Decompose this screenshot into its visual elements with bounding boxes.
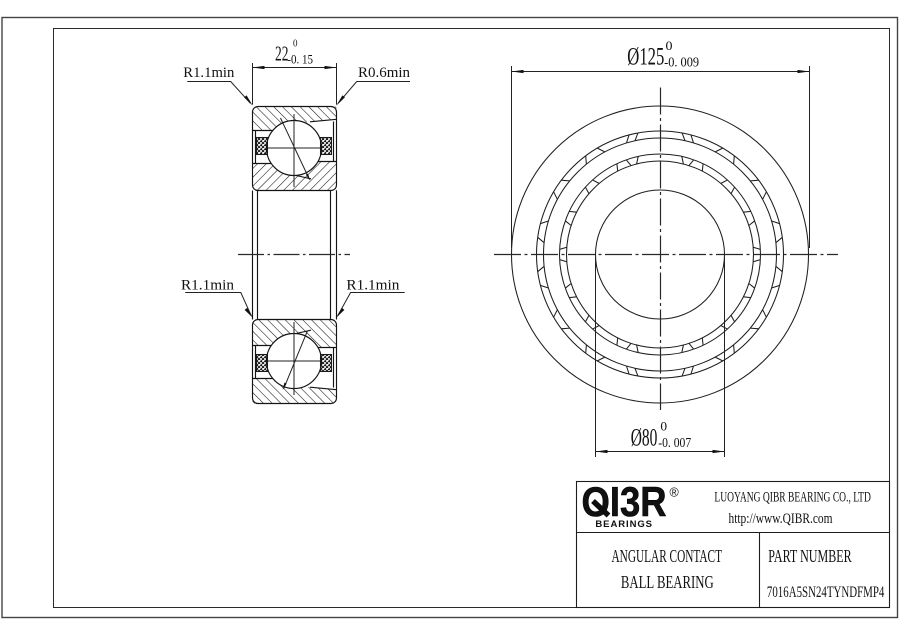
svg-text:PART NUMBER: PART NUMBER xyxy=(768,546,851,566)
svg-text:R0.6min: R0.6min xyxy=(358,65,410,81)
svg-text:Ø80: Ø80 xyxy=(631,425,658,452)
svg-text:BALL BEARING: BALL BEARING xyxy=(621,572,714,592)
svg-text:BEARINGS: BEARINGS xyxy=(595,519,652,530)
svg-text:®: ® xyxy=(670,486,680,500)
svg-text:Ø125: Ø125 xyxy=(627,43,664,70)
svg-text:-0. 007: -0. 007 xyxy=(658,436,691,451)
svg-text:0: 0 xyxy=(666,39,673,53)
svg-text:LUOYANG QIBR BEARING CO., LTD: LUOYANG QIBR BEARING CO., LTD xyxy=(714,490,871,506)
svg-text:0: 0 xyxy=(293,38,298,49)
svg-text:R1.1min: R1.1min xyxy=(346,278,400,294)
svg-text:ANGULAR CONTACT: ANGULAR CONTACT xyxy=(612,546,723,566)
svg-text:7016A5SN24TYNDFMP4: 7016A5SN24TYNDFMP4 xyxy=(767,584,885,601)
svg-text:0: 0 xyxy=(660,420,667,434)
svg-text:http://www.QIBR.com: http://www.QIBR.com xyxy=(729,511,834,527)
svg-text:R1.1min: R1.1min xyxy=(183,65,234,81)
svg-text:-0. 15: -0. 15 xyxy=(287,51,313,66)
svg-text:-0. 009: -0. 009 xyxy=(664,55,699,70)
svg-text:R1.1min: R1.1min xyxy=(181,278,235,294)
